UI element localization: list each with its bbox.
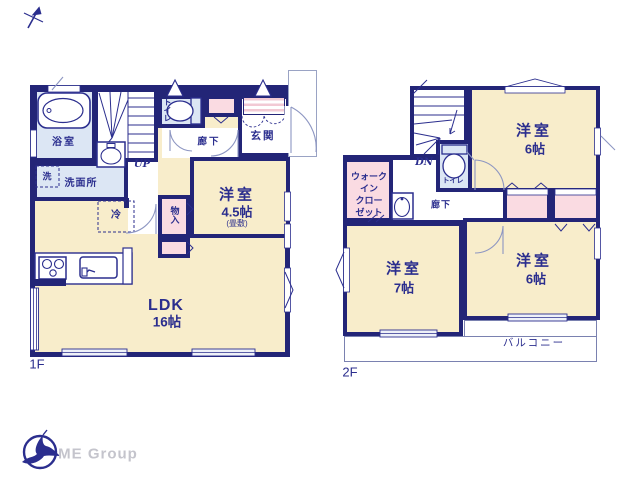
label-room6b-name: 洋室 [516, 254, 552, 269]
label-washroom: 洗面所 [65, 179, 98, 189]
closet-small-1f [158, 238, 190, 258]
label-room45-name: 洋室 [219, 188, 255, 203]
hall-strip [128, 162, 158, 234]
label-hall-1f: 廊下 [197, 137, 220, 147]
label-fridge: 冷 [111, 211, 121, 221]
label-entrance: 玄関 [251, 131, 276, 142]
label-balcony: バルコニー [503, 338, 565, 349]
label-wic-4: ゼット [355, 209, 382, 218]
label-laundry: 洗 [42, 173, 51, 182]
label-bath: 浴室 [52, 138, 76, 148]
compass-icon [24, 8, 43, 28]
label-wic-1: ウォーク [351, 173, 387, 182]
label-room6b-size: 6帖 [526, 273, 546, 286]
label-wic-2: イン [360, 185, 378, 194]
me-group-logo-icon [22, 430, 60, 468]
label-room45-note: (畳敷) [226, 220, 247, 228]
wall-segment [124, 198, 129, 208]
room-western-7 [343, 222, 463, 336]
label-toilet-2f: トイレ [443, 178, 464, 185]
label-toilet-1f: トイレ [163, 98, 171, 122]
floorplan-canvas: 浴室 洗 洗面所 UP トイレ 廊下 玄関 洋室 4.5帖 (畳敷) 物入 冷 … [0, 0, 640, 480]
label-stairs-up: UP [134, 160, 150, 170]
entrance-door-icon [243, 97, 285, 115]
label-room6a-size: 6帖 [525, 143, 545, 156]
label-stairs-dn: DN [415, 158, 433, 168]
label-ldk-name: LDK [148, 298, 184, 314]
balcony-outline-right [464, 320, 597, 337]
label-floor-2f: 2F [342, 366, 357, 379]
label-storage: 物入 [170, 206, 179, 224]
label-hall-2f: 廊下 [431, 201, 451, 210]
label-wic-3: クロー [355, 197, 382, 206]
closet-entry [205, 95, 238, 117]
label-room7-name: 洋室 [386, 262, 422, 277]
closet-2f-b [551, 188, 600, 222]
room-bathroom [33, 88, 96, 162]
label-ldk-size: 16帖 [153, 315, 182, 329]
label-room45-size: 4.5帖 [221, 206, 252, 219]
room-stairs-1f [94, 88, 158, 162]
label-room7-size: 7帖 [394, 282, 414, 295]
label-room6a-name: 洋室 [516, 124, 552, 139]
label-floor-1f: 1F [29, 358, 44, 371]
entrance-porch [288, 70, 317, 157]
closet-2f-a [503, 188, 551, 222]
brand-text: ME Group [58, 447, 138, 462]
